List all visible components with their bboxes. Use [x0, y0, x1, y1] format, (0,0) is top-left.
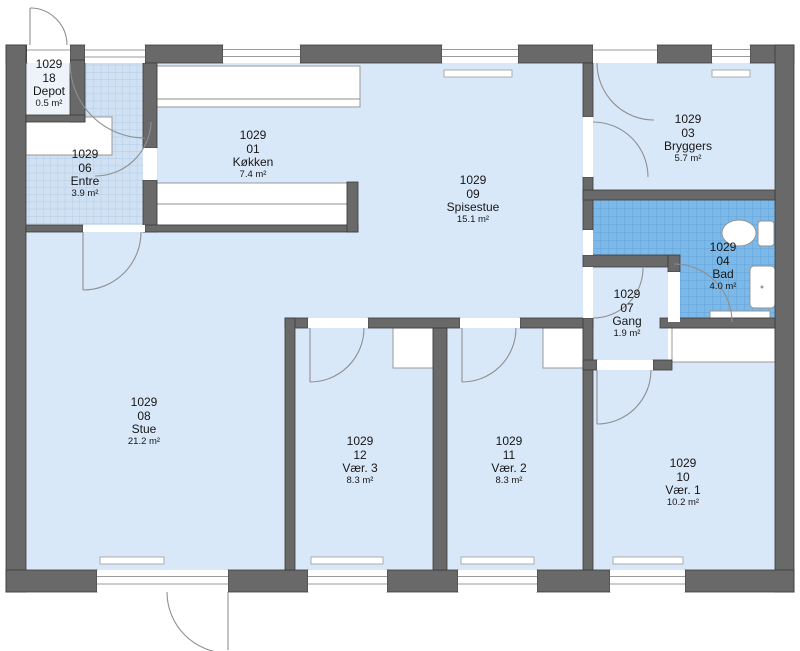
vaer2-wardrobe: [543, 328, 583, 368]
floor-plan-drawing: [0, 0, 800, 651]
floor-bad-strip: [593, 200, 660, 255]
kitchen-counter-top: [157, 66, 360, 107]
window: [223, 45, 300, 63]
depot-door-opening: [27, 45, 70, 63]
vaer2-door-opening: [460, 318, 520, 328]
bryggers-side-door-opening: [583, 117, 593, 177]
gang-passage-opening: [583, 267, 593, 318]
toilet-tank: [758, 221, 774, 246]
window: [442, 45, 518, 63]
window: [97, 570, 167, 592]
wall-depot-right: [70, 60, 85, 122]
vaer1-door-opening: [597, 360, 653, 370]
window: [458, 570, 537, 592]
room-floors: [26, 63, 775, 570]
vaer3-door-opening: [308, 318, 368, 328]
vaer1-wardrobe: [672, 328, 775, 362]
front-door-opening: [85, 45, 145, 63]
terrace-door-opening: [167, 570, 228, 592]
floor-depot: [26, 63, 70, 115]
window: [308, 570, 387, 592]
interior-window-opening: [583, 230, 593, 255]
toilet-bowl: [722, 220, 756, 246]
floor-stue: [26, 228, 295, 570]
floor-vaer1: [593, 362, 775, 570]
sink-drain: [761, 286, 764, 289]
window: [610, 570, 685, 592]
vaer3-wardrobe: [393, 328, 433, 368]
window: [712, 45, 750, 63]
entre-stue-opening: [83, 225, 145, 232]
bryggers-door-opening: [593, 45, 657, 63]
floor-bryggers: [593, 63, 775, 190]
floor-gang: [593, 267, 668, 360]
bath-shelf: [710, 311, 770, 318]
entre-kitchen-opening: [143, 148, 157, 180]
wall-depot-bottom: [26, 115, 85, 122]
bad-door-opening: [668, 272, 680, 322]
floor-plan: 1029 18 Depot 0.5 m² 1029 06 Entre 3.9 m…: [0, 0, 800, 651]
